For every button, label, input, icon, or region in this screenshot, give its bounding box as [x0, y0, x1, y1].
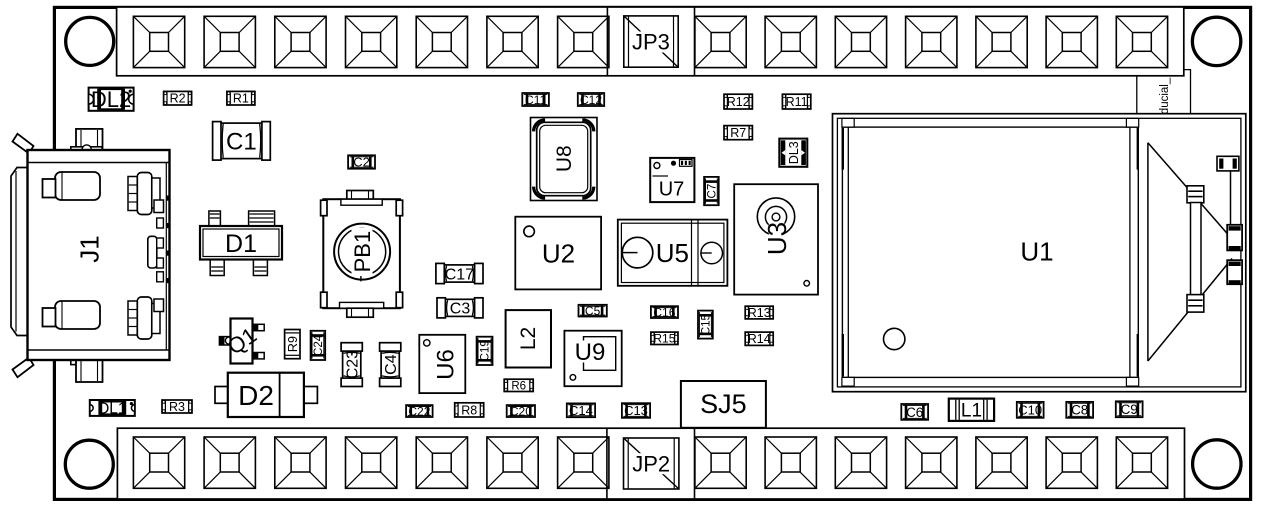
svg-text:R15: R15 [653, 332, 675, 346]
svg-text:D1: D1 [225, 230, 257, 258]
svg-text:C24: C24 [313, 334, 325, 356]
svg-text:C20: C20 [510, 404, 532, 418]
svg-text:U9: U9 [575, 339, 606, 366]
svg-text:C22: C22 [408, 404, 430, 418]
svg-text:C3: C3 [450, 301, 471, 318]
svg-text:R2: R2 [170, 92, 186, 106]
svg-text:C4: C4 [383, 354, 400, 375]
svg-text:PB1: PB1 [350, 231, 375, 273]
svg-text:U5: U5 [656, 238, 689, 268]
svg-text:U1: U1 [1020, 236, 1053, 266]
svg-text:U7: U7 [659, 179, 685, 201]
svg-text:JP2: JP2 [632, 451, 670, 476]
svg-text:C16: C16 [653, 305, 675, 319]
svg-text:C10: C10 [1018, 403, 1042, 418]
svg-text:C1: C1 [226, 129, 257, 156]
svg-text:L1: L1 [961, 401, 982, 422]
svg-text:U8: U8 [553, 145, 576, 172]
svg-text:C14: C14 [569, 403, 593, 418]
svg-text:C8: C8 [1071, 403, 1088, 418]
svg-text:R13: R13 [748, 306, 771, 320]
svg-text:C17: C17 [445, 266, 474, 283]
svg-text:C15: C15 [701, 314, 713, 335]
svg-text:C13: C13 [624, 403, 648, 418]
svg-text:ducial_: ducial_ [1159, 77, 1171, 114]
svg-text:J1: J1 [74, 235, 104, 262]
svg-text:C2: C2 [353, 155, 370, 170]
svg-text:C23: C23 [345, 350, 362, 379]
svg-text:R11: R11 [786, 95, 808, 109]
svg-text:D2: D2 [238, 380, 274, 411]
svg-text:R1: R1 [233, 92, 249, 106]
svg-text:R8: R8 [461, 403, 477, 417]
svg-text:C19: C19 [480, 340, 492, 361]
svg-text:R12: R12 [727, 95, 750, 109]
svg-text:C7: C7 [707, 184, 719, 199]
svg-text:C5: C5 [585, 304, 601, 318]
svg-text:SJ5: SJ5 [700, 389, 747, 419]
svg-text:C12: C12 [580, 93, 602, 107]
svg-text:R14: R14 [748, 332, 771, 346]
svg-text:DL2: DL2 [91, 87, 131, 112]
svg-text:C11: C11 [525, 93, 546, 107]
svg-text:U2: U2 [542, 238, 575, 268]
svg-text:DL1: DL1 [98, 401, 126, 418]
svg-text:C9: C9 [1121, 402, 1138, 417]
svg-text:U3: U3 [762, 222, 792, 255]
svg-text:R7: R7 [730, 126, 746, 140]
svg-text:DL3: DL3 [787, 141, 801, 164]
svg-text:R6: R6 [511, 381, 526, 393]
svg-text:C6: C6 [906, 405, 923, 420]
svg-text:R3: R3 [169, 400, 185, 414]
svg-text:U6: U6 [433, 349, 460, 380]
svg-text:JP3: JP3 [632, 30, 670, 55]
svg-text:L2: L2 [517, 327, 540, 350]
svg-text:R9: R9 [286, 336, 300, 352]
